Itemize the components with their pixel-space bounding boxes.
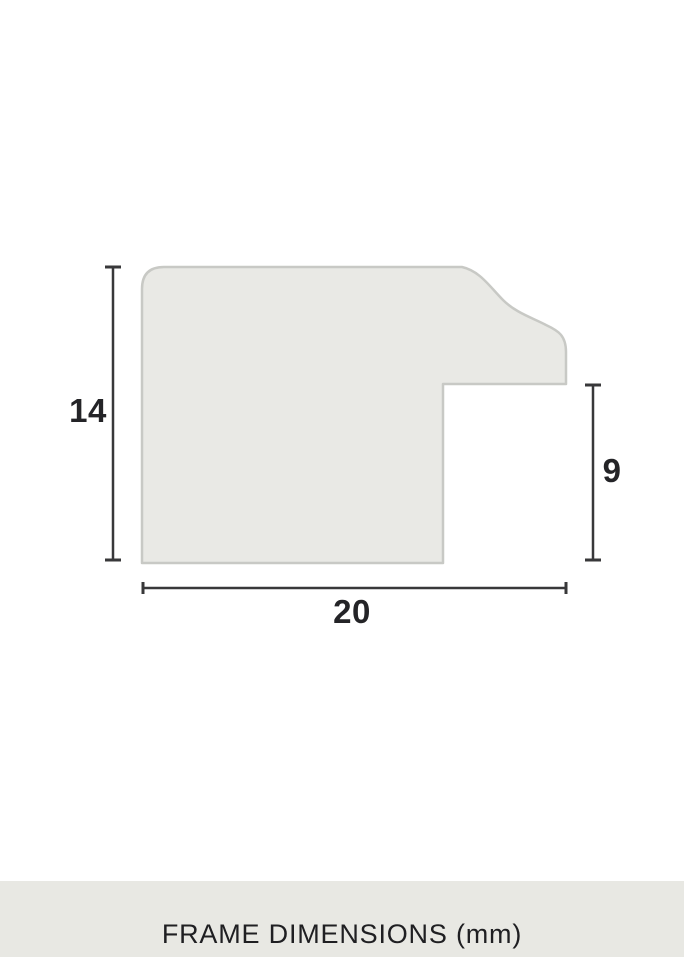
footer-bar: FRAME DIMENSIONS (mm) [0, 881, 684, 957]
footer-title: FRAME DIMENSIONS (mm) [0, 919, 684, 950]
frame-profile-shape [142, 267, 566, 563]
height-dimension-line [105, 267, 121, 560]
rebate-dimension-line [585, 385, 601, 560]
height-dimension-label: 14 [69, 392, 107, 430]
frame-profile-diagram: 14 9 20 FRAME DIMENSIONS (mm) [0, 0, 684, 957]
rebate-dimension-label: 9 [603, 452, 622, 490]
width-dimension-label: 20 [333, 593, 371, 631]
diagram-canvas [0, 0, 684, 957]
